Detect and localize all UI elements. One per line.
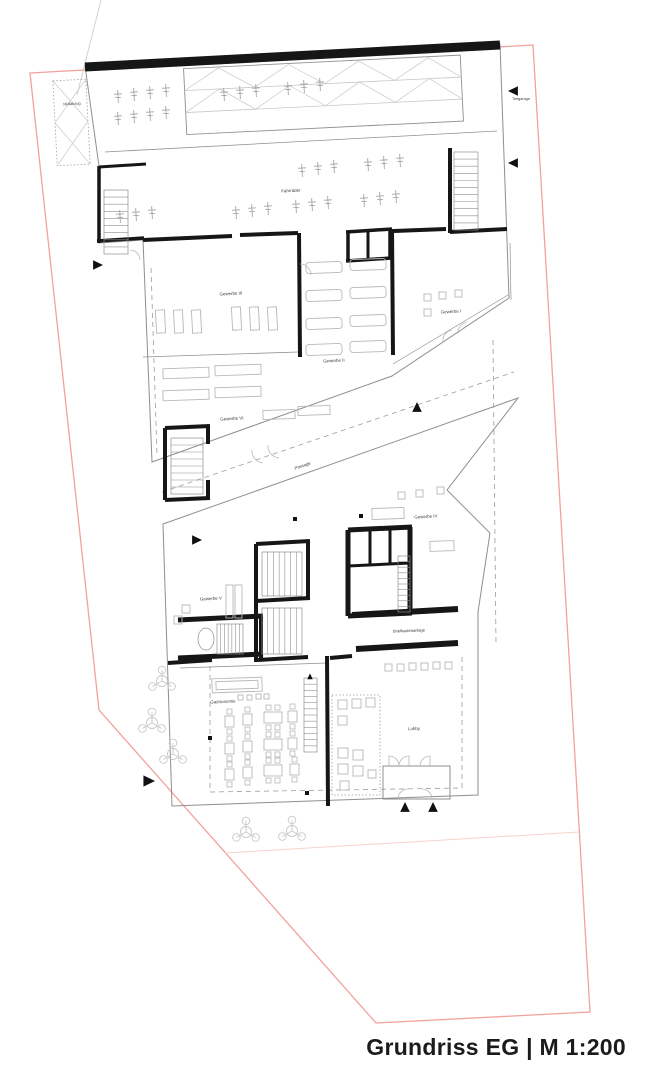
tree-icon [149,666,176,690]
bicycle-icon [248,204,257,217]
bicycle-icon [330,160,339,173]
column-marker [293,517,297,521]
entrance-arrow-icon [400,802,410,812]
entrance-arrow-icon [192,535,202,545]
bicycle-icon [232,206,241,219]
bicycle-icon [252,84,261,97]
bicycle-icon [114,90,123,103]
garage-ramp [184,55,464,134]
entrance-arrow-icon [412,402,422,412]
room-label-gewerbe-ii: Gewerbe II [323,357,345,363]
entrance-arrow-icon [143,775,155,786]
bicycle-icon [396,154,405,167]
entrance-arrow-icon [508,158,518,168]
room-label-tiefgarage: Tiefgarage [512,97,530,101]
bicycle-icon [308,198,317,211]
bicycle-icon [324,196,333,209]
entrance-arrow-icon [428,802,438,812]
room-label-fahrraeder: Fahrräder [281,187,301,193]
bicycle-icon [146,86,155,99]
bicycle-icon [292,200,301,213]
entrance-arrow-icon [93,260,103,270]
room-label-gewerbe-vi: Gewerbe VI [220,415,243,421]
column-marker [359,514,363,518]
bicycle-icon [114,112,123,125]
stairs [104,152,478,752]
bicycle-icon [130,88,139,101]
bicycle-icon [130,110,139,123]
tree-icon [279,816,306,840]
bicycle-icon [298,164,307,177]
room-label-gewerbe-iv: Gewerbe IV [414,513,437,519]
muell-strip [53,79,90,166]
drawing-title: Grundriss EG | M 1:200 [366,1034,626,1061]
room-label-gewerbe-i: Gewerbe I [441,308,461,314]
bicycle-icon [162,106,171,119]
bicycle-icon [380,156,389,169]
room-label-gastronomie: Gastronomie [210,699,236,705]
building-walls [85,45,507,806]
tree-icon [233,817,260,841]
bicycle-icon [146,108,155,121]
floor-plan-svg: MüllabzugTiefgarageFahrräderGewerbe IIIG… [0,0,650,1074]
entrance-arrow-icon [508,86,518,96]
room-label-passage: Passage [294,460,312,470]
bicycle-icon [300,80,309,93]
room-label-gewerbe-v: Gewerbe V [200,595,222,601]
room-label-muellabzug: Müllabzug [63,102,80,107]
tree-icon [139,708,166,732]
bicycle-icon [392,190,401,203]
floor-plan-sheet: MüllabzugTiefgarageFahrräderGewerbe IIIG… [0,0,650,1074]
bicycle-icon [376,192,385,205]
tree-icon [160,739,187,763]
entrance-arrow-icon [307,674,313,680]
bicycle-icon [264,202,273,215]
room-label-lobby: Lobby [408,726,421,731]
column-marker [208,736,212,740]
bicycle-icon [148,206,157,219]
column-marker [305,791,309,795]
room-label-gewerbe-iii: Gewerbe III [219,290,242,296]
building-outline [85,44,518,806]
bicycle-icon [162,84,171,97]
room-labels: MüllabzugTiefgarageFahrräderGewerbe IIIG… [63,97,530,731]
bicycle-racks [114,78,405,223]
bicycle-icon [360,194,369,207]
site-boundary [30,0,590,1023]
bicycle-icon [132,208,141,221]
bicycle-icon [364,158,373,171]
bicycle-icon [314,162,323,175]
room-label-briefkastenanlage: Briefkastenanlage [393,627,426,633]
bicycle-icon [116,210,125,223]
